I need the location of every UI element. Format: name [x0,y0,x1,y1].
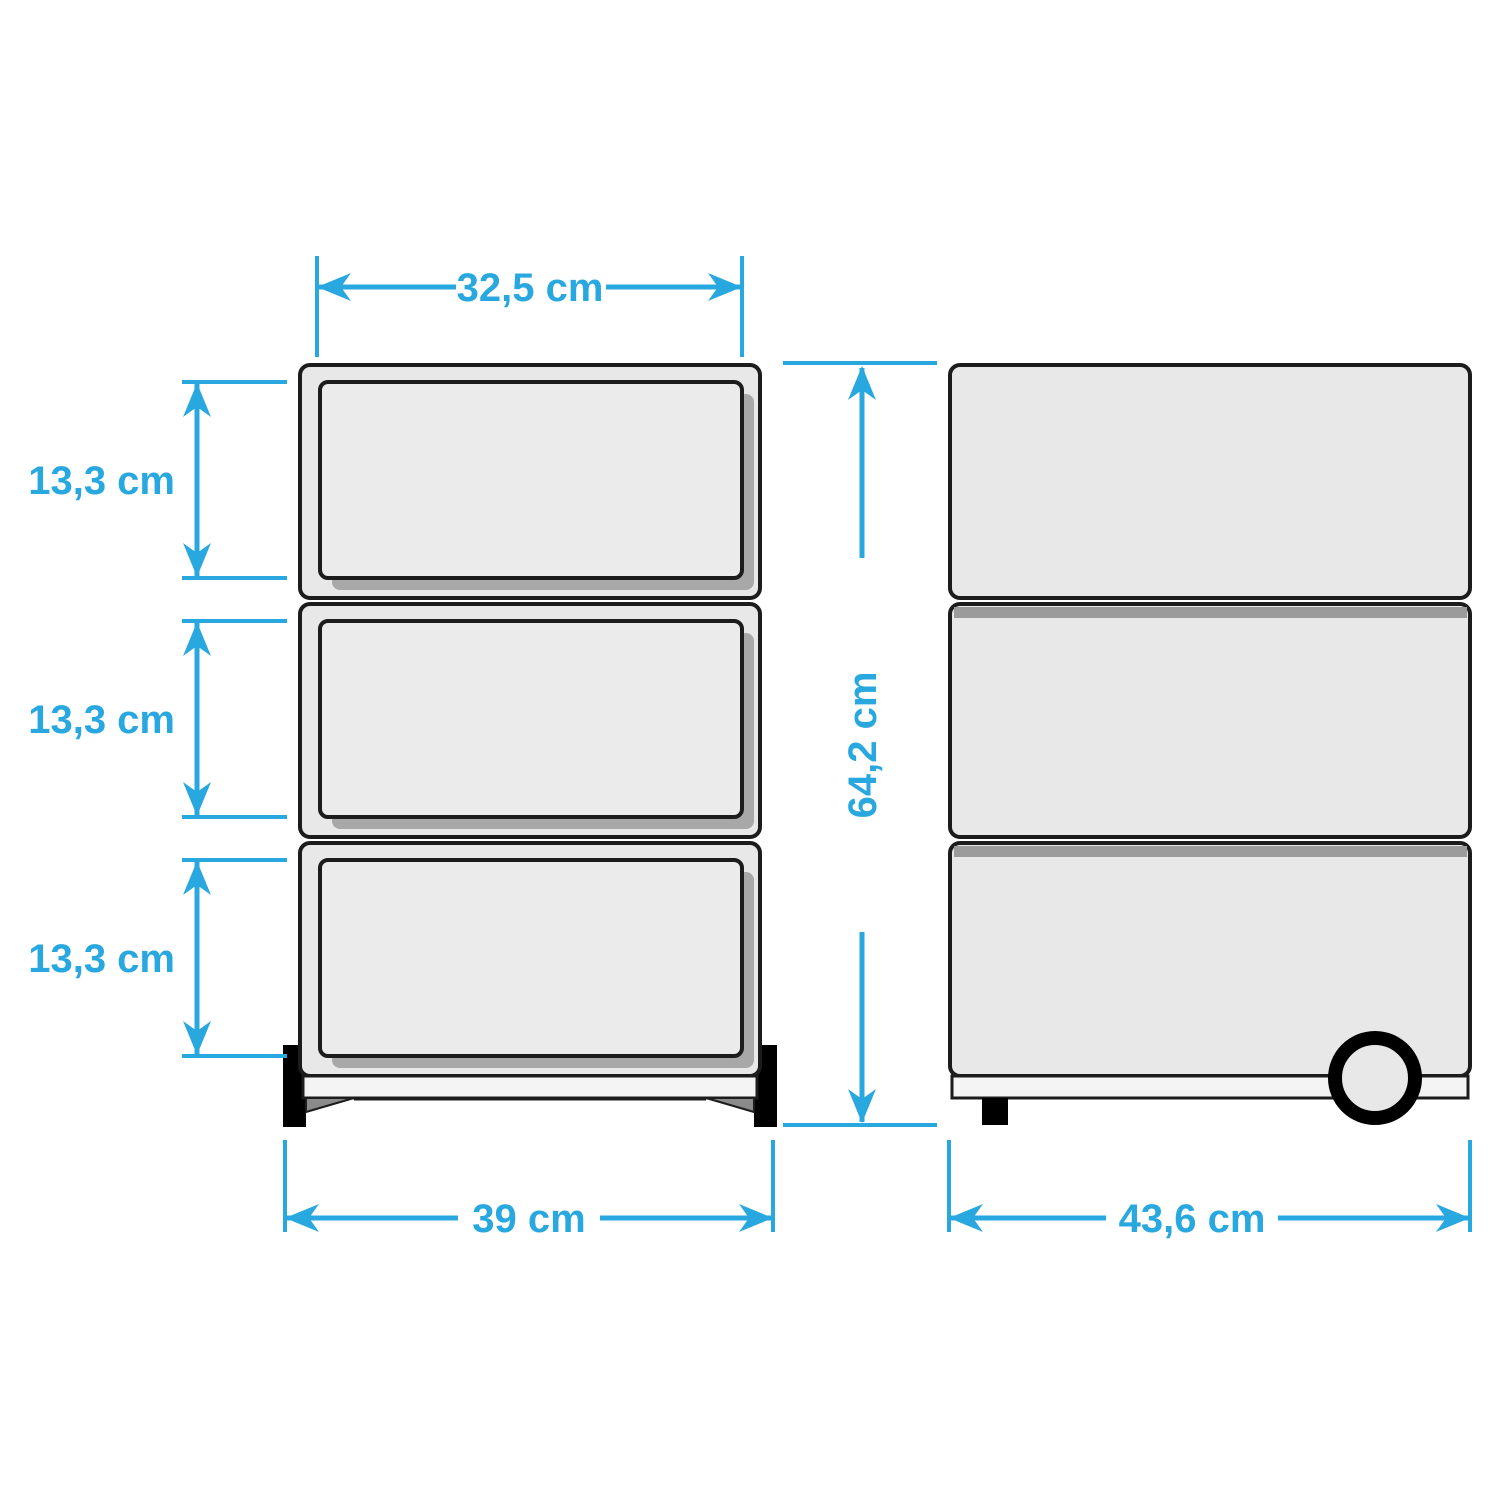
total-height-label: 64,2 cm [841,672,885,819]
front-plinth [303,1076,757,1098]
base-shadow-wedge-left [306,1098,354,1112]
side-panel-1 [950,365,1470,598]
wheel [1335,1038,1415,1118]
drawer-front [320,382,742,578]
dim-front-width: 39 cm [285,1140,773,1241]
drawer-height-2-label: 13,3 cm [28,698,175,742]
cabinet-dimension-diagram: 32,5 cm 13,3 cm 13,3 cm 13,3 cm 64,2 cm [0,0,1500,1500]
dim-drawer-height-3: 13,3 cm [28,860,287,1056]
top-width-label: 32,5 cm [457,266,604,310]
drawer-height-1-label: 13,3 cm [28,459,175,503]
side-view [950,365,1470,1125]
front-view [283,365,777,1127]
front-drawer-module-2 [300,604,760,837]
side-separator-shadow-2 [954,846,1467,857]
dimension-diagram-page: 32,5 cm 13,3 cm 13,3 cm 13,3 cm 64,2 cm [0,0,1500,1500]
side-foot [982,1098,1008,1125]
dim-drawer-height-1: 13,3 cm [28,382,287,578]
side-separator-shadow-1 [954,607,1467,618]
dim-drawer-height-2: 13,3 cm [28,621,287,817]
dim-top-width: 32,5 cm [317,256,742,357]
drawer-front [320,860,742,1056]
front-width-label: 39 cm [472,1197,585,1241]
dim-total-height: 64,2 cm [783,363,937,1125]
drawer-front [320,621,742,817]
side-panel-2 [950,604,1470,837]
side-depth-label: 43,6 cm [1119,1197,1266,1241]
base-shadow-wedge-right [706,1098,754,1112]
front-drawer-module-1 [300,365,760,598]
drawer-height-3-label: 13,3 cm [28,937,175,981]
dim-side-depth: 43,6 cm [949,1140,1470,1241]
front-drawer-module-3 [300,843,760,1076]
